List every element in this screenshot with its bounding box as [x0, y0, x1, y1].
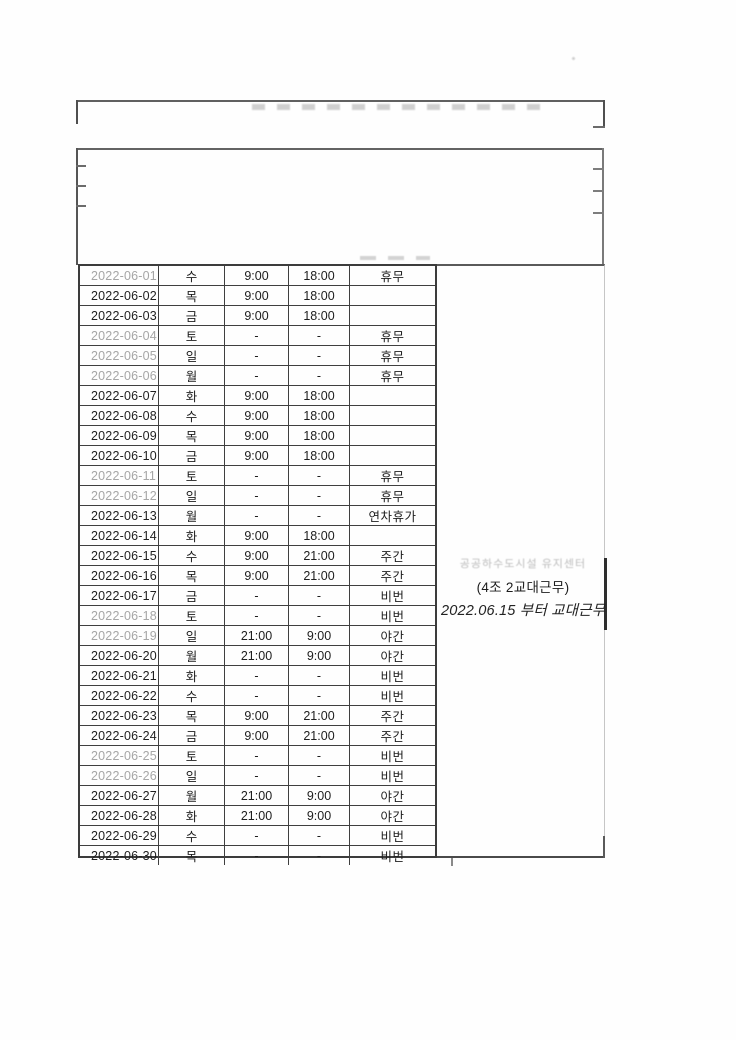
table-row: 2022-06-22 수 - - 비번	[80, 686, 435, 706]
table-row: 2022-06-01 수 9:00 18:00 휴무	[80, 266, 435, 286]
cell-start: 9:00	[225, 526, 289, 545]
cell-date: 2022-06-08	[80, 406, 159, 425]
cell-status: 비번	[350, 606, 435, 625]
annotation-erased-facility-line: 공공하수도시설 유지센터	[443, 555, 603, 570]
cell-day: 일	[159, 486, 225, 505]
cell-start: -	[225, 826, 289, 845]
cell-end: 9:00	[289, 806, 350, 825]
cell-start: -	[225, 346, 289, 365]
cell-end: 18:00	[289, 306, 350, 325]
cell-end: -	[289, 766, 350, 785]
cell-end: -	[289, 846, 350, 865]
cell-end: -	[289, 746, 350, 765]
cell-start: 21:00	[225, 806, 289, 825]
cell-end: 9:00	[289, 626, 350, 645]
scan-smudge	[360, 256, 430, 260]
cell-status	[350, 526, 435, 545]
cell-day: 금	[159, 586, 225, 605]
cell-start: 9:00	[225, 406, 289, 425]
cell-status: 비번	[350, 766, 435, 785]
cell-date: 2022-06-16	[80, 566, 159, 585]
cell-end: -	[289, 826, 350, 845]
cell-start: -	[225, 666, 289, 685]
table-row: 2022-06-27 월 21:00 9:00 야간	[80, 786, 435, 806]
cell-date: 2022-06-07	[80, 386, 159, 405]
cell-end: -	[289, 326, 350, 345]
cell-date: 2022-06-02	[80, 286, 159, 305]
cell-day: 금	[159, 726, 225, 745]
cell-date: 2022-06-03	[80, 306, 159, 325]
cell-date: 2022-06-27	[80, 786, 159, 805]
cell-status: 비번	[350, 666, 435, 685]
table-row: 2022-06-13 월 - - 연차휴가	[80, 506, 435, 526]
cell-end: -	[289, 506, 350, 525]
table-row: 2022-06-15 수 9:00 21:00 주간	[80, 546, 435, 566]
cell-start: 21:00	[225, 626, 289, 645]
cell-day: 목	[159, 706, 225, 725]
cell-start: 9:00	[225, 546, 289, 565]
cell-end: 9:00	[289, 646, 350, 665]
cell-end: 21:00	[289, 566, 350, 585]
cell-day: 수	[159, 826, 225, 845]
cell-date: 2022-06-15	[80, 546, 159, 565]
cell-status: 비번	[350, 746, 435, 765]
cell-start: 9:00	[225, 286, 289, 305]
cell-start: -	[225, 326, 289, 345]
cell-date: 2022-06-17	[80, 586, 159, 605]
notes-column-right-border-dark	[604, 558, 607, 630]
table-row: 2022-06-23 목 9:00 21:00 주간	[80, 706, 435, 726]
cell-date: 2022-06-04	[80, 326, 159, 345]
cell-status: 비번	[350, 826, 435, 845]
cell-start: -	[225, 506, 289, 525]
cell-date: 2022-06-09	[80, 426, 159, 445]
cell-date: 2022-06-22	[80, 686, 159, 705]
cell-start: -	[225, 466, 289, 485]
header-box-row-tick	[76, 165, 86, 167]
header-box-row-tick	[76, 205, 86, 207]
cell-end: -	[289, 466, 350, 485]
scanned-schedule-page: 2022-06-01 수 9:00 18:00 휴무 2022-06-02 목 …	[0, 0, 736, 1040]
cell-end: -	[289, 666, 350, 685]
table-row: 2022-06-21 화 - - 비번	[80, 666, 435, 686]
cell-status: 휴무	[350, 346, 435, 365]
cell-start: 9:00	[225, 386, 289, 405]
cell-start: 9:00	[225, 266, 289, 285]
cell-day: 금	[159, 446, 225, 465]
title-box-top-border	[76, 100, 605, 102]
cell-end: -	[289, 346, 350, 365]
table-row: 2022-06-05 일 - - 휴무	[80, 346, 435, 366]
header-box-top-border	[76, 148, 604, 150]
cell-start: 21:00	[225, 786, 289, 805]
cell-day: 목	[159, 566, 225, 585]
cell-day: 일	[159, 766, 225, 785]
cell-end: -	[289, 486, 350, 505]
cell-day: 수	[159, 546, 225, 565]
cell-start: -	[225, 586, 289, 605]
cell-day: 월	[159, 646, 225, 665]
table-row: 2022-06-20 월 21:00 9:00 야간	[80, 646, 435, 666]
cell-status	[350, 446, 435, 465]
table-row: 2022-06-04 토 - - 휴무	[80, 326, 435, 346]
cell-day: 목	[159, 426, 225, 445]
table-bottom-tick	[451, 858, 453, 866]
cell-start: 9:00	[225, 726, 289, 745]
table-row: 2022-06-08 수 9:00 18:00	[80, 406, 435, 426]
cell-day: 토	[159, 606, 225, 625]
cell-day: 화	[159, 526, 225, 545]
cell-date: 2022-06-20	[80, 646, 159, 665]
notes-column-right-border-bottom	[603, 836, 605, 858]
cell-day: 토	[159, 326, 225, 345]
cell-status	[350, 286, 435, 305]
cell-status: 휴무	[350, 326, 435, 345]
cell-start: 21:00	[225, 646, 289, 665]
cell-date: 2022-06-01	[80, 266, 159, 285]
cell-date: 2022-06-24	[80, 726, 159, 745]
cell-start: 9:00	[225, 446, 289, 465]
scan-speck	[571, 56, 576, 61]
schedule-table: 2022-06-01 수 9:00 18:00 휴무 2022-06-02 목 …	[78, 264, 437, 858]
table-row: 2022-06-03 금 9:00 18:00	[80, 306, 435, 326]
cell-start: 9:00	[225, 306, 289, 325]
cell-start: -	[225, 746, 289, 765]
title-box-right-hook	[593, 126, 605, 128]
cell-status: 휴무	[350, 366, 435, 385]
cell-date: 2022-06-26	[80, 766, 159, 785]
cell-status: 야간	[350, 646, 435, 665]
table-row: 2022-06-26 일 - - 비번	[80, 766, 435, 786]
header-box-row-tick	[593, 168, 604, 170]
cell-end: -	[289, 606, 350, 625]
cell-status: 야간	[350, 786, 435, 805]
cell-end: 18:00	[289, 446, 350, 465]
cell-start: -	[225, 846, 289, 865]
cell-start: -	[225, 366, 289, 385]
cell-start: 9:00	[225, 566, 289, 585]
header-box-row-tick	[593, 190, 604, 192]
cell-day: 일	[159, 346, 225, 365]
cell-end: 18:00	[289, 286, 350, 305]
cell-day: 화	[159, 666, 225, 685]
table-row: 2022-06-28 화 21:00 9:00 야간	[80, 806, 435, 826]
table-row: 2022-06-12 일 - - 휴무	[80, 486, 435, 506]
cell-date: 2022-06-13	[80, 506, 159, 525]
header-box-row-tick	[76, 185, 86, 187]
cell-end: 18:00	[289, 386, 350, 405]
cell-date: 2022-06-19	[80, 626, 159, 645]
cell-start: 9:00	[225, 426, 289, 445]
cell-end: -	[289, 686, 350, 705]
cell-status: 비번	[350, 846, 435, 865]
cell-end: 18:00	[289, 526, 350, 545]
cell-status	[350, 426, 435, 445]
title-box-right-bracket	[603, 100, 605, 128]
cell-status: 휴무	[350, 486, 435, 505]
cell-status: 주간	[350, 706, 435, 725]
table-row: 2022-06-06 월 - - 휴무	[80, 366, 435, 386]
cell-end: 18:00	[289, 426, 350, 445]
cell-status: 비번	[350, 686, 435, 705]
cell-date: 2022-06-23	[80, 706, 159, 725]
cell-end: -	[289, 586, 350, 605]
cell-end: 18:00	[289, 406, 350, 425]
cell-start: -	[225, 686, 289, 705]
cell-date: 2022-06-28	[80, 806, 159, 825]
cell-status	[350, 406, 435, 425]
cell-date: 2022-06-29	[80, 826, 159, 845]
cell-date: 2022-06-30	[80, 846, 159, 865]
cell-end: 21:00	[289, 726, 350, 745]
cell-status: 휴무	[350, 466, 435, 485]
table-row: 2022-06-30 목 - - 비번	[80, 846, 435, 865]
cell-day: 수	[159, 266, 225, 285]
table-row: 2022-06-02 목 9:00 18:00	[80, 286, 435, 306]
table-row: 2022-06-10 금 9:00 18:00	[80, 446, 435, 466]
cell-end: 21:00	[289, 546, 350, 565]
cell-status: 휴무	[350, 266, 435, 285]
cell-end: 9:00	[289, 786, 350, 805]
cell-status	[350, 386, 435, 405]
cell-day: 금	[159, 306, 225, 325]
cell-day: 화	[159, 806, 225, 825]
cell-end: -	[289, 366, 350, 385]
cell-date: 2022-06-18	[80, 606, 159, 625]
header-box-right-border	[602, 148, 604, 266]
cell-day: 토	[159, 746, 225, 765]
cell-date: 2022-06-06	[80, 366, 159, 385]
title-box-left-bracket	[76, 100, 78, 124]
cell-day: 월	[159, 366, 225, 385]
table-row: 2022-06-09 목 9:00 18:00	[80, 426, 435, 446]
cell-start: -	[225, 766, 289, 785]
cell-day: 수	[159, 686, 225, 705]
table-row: 2022-06-18 토 - - 비번	[80, 606, 435, 626]
annotation-shift-start-date-line: 2022.06.15 부터 교대근무	[441, 599, 601, 620]
cell-start: -	[225, 606, 289, 625]
cell-status: 야간	[350, 806, 435, 825]
cell-day: 토	[159, 466, 225, 485]
table-row: 2022-06-14 화 9:00 18:00	[80, 526, 435, 546]
cell-day: 화	[159, 386, 225, 405]
cell-day: 목	[159, 846, 225, 865]
table-row: 2022-06-16 목 9:00 21:00 주간	[80, 566, 435, 586]
cell-status: 주간	[350, 566, 435, 585]
table-row: 2022-06-25 토 - - 비번	[80, 746, 435, 766]
erased-title-smudge	[252, 104, 540, 110]
cell-status: 비번	[350, 586, 435, 605]
table-row: 2022-06-29 수 - - 비번	[80, 826, 435, 846]
cell-status	[350, 306, 435, 325]
cell-date: 2022-06-12	[80, 486, 159, 505]
table-row: 2022-06-19 일 21:00 9:00 야간	[80, 626, 435, 646]
cell-day: 월	[159, 786, 225, 805]
table-row: 2022-06-24 금 9:00 21:00 주간	[80, 726, 435, 746]
cell-status: 주간	[350, 546, 435, 565]
cell-date: 2022-06-10	[80, 446, 159, 465]
cell-date: 2022-06-21	[80, 666, 159, 685]
cell-day: 일	[159, 626, 225, 645]
header-box-row-tick	[593, 212, 604, 214]
cell-status: 연차휴가	[350, 506, 435, 525]
cell-status: 주간	[350, 726, 435, 745]
cell-day: 수	[159, 406, 225, 425]
cell-start: -	[225, 486, 289, 505]
table-row: 2022-06-17 금 - - 비번	[80, 586, 435, 606]
annotation-shift-team-line: (4조 2교대근무)	[443, 576, 603, 596]
cell-end: 18:00	[289, 266, 350, 285]
cell-date: 2022-06-05	[80, 346, 159, 365]
table-row: 2022-06-11 토 - - 휴무	[80, 466, 435, 486]
cell-day: 목	[159, 286, 225, 305]
cell-start: 9:00	[225, 706, 289, 725]
table-row: 2022-06-07 화 9:00 18:00	[80, 386, 435, 406]
cell-date: 2022-06-11	[80, 466, 159, 485]
cell-end: 21:00	[289, 706, 350, 725]
cell-date: 2022-06-25	[80, 746, 159, 765]
cell-status: 야간	[350, 626, 435, 645]
annotation-block: 공공하수도시설 유지센터 (4조 2교대근무) 2022.06.15 부터 교대…	[443, 555, 603, 620]
cell-day: 월	[159, 506, 225, 525]
cell-date: 2022-06-14	[80, 526, 159, 545]
